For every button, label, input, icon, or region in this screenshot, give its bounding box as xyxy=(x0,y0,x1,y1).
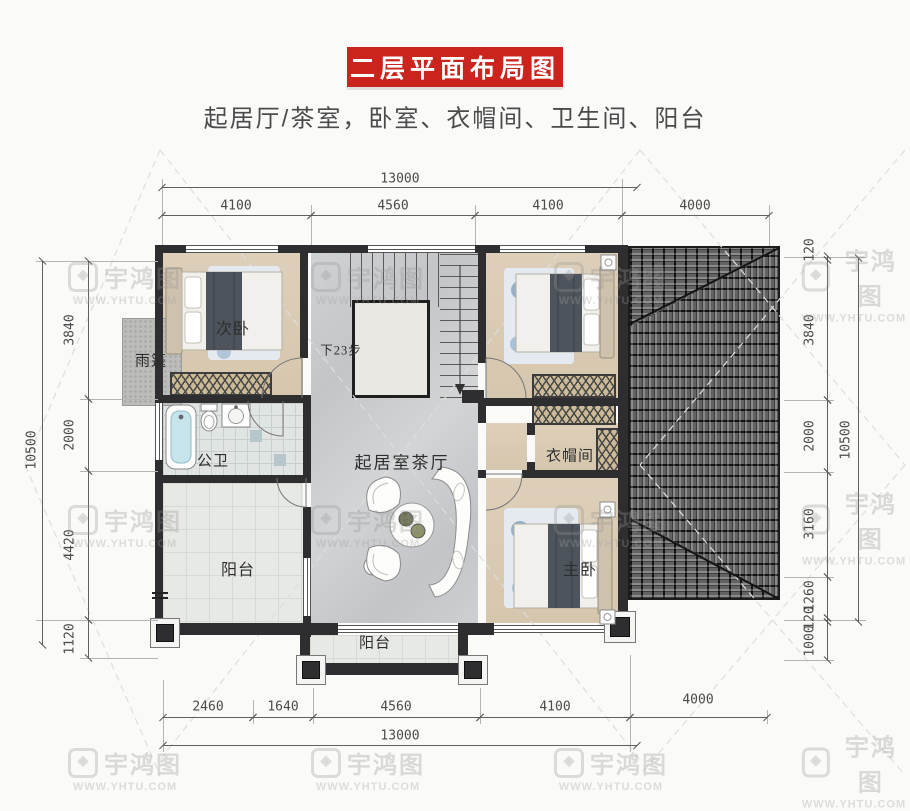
roof-ridge-line xyxy=(628,248,779,599)
nightstand xyxy=(601,255,616,270)
dim-line xyxy=(827,260,828,400)
dim-top-seg: 4560 xyxy=(377,199,408,214)
dim-top-overall: 13000 xyxy=(380,172,419,187)
dim-line xyxy=(480,717,630,718)
dim-bottom-seg: 4000 xyxy=(682,693,713,708)
decor xyxy=(367,546,401,581)
decor xyxy=(600,502,615,517)
dim-right-overall: 10500 xyxy=(839,420,854,459)
dim-line xyxy=(827,577,828,618)
dim-line xyxy=(42,261,43,645)
dim-line xyxy=(475,215,622,216)
dim-left-seg: 1120 xyxy=(63,623,78,654)
dim-bottom-seg: 4100 xyxy=(539,700,570,715)
decor xyxy=(601,255,616,270)
dim-right-seg: 3840 xyxy=(803,314,818,345)
dim-line xyxy=(630,717,767,718)
dim-extension-line xyxy=(769,205,770,246)
decor xyxy=(277,478,306,507)
decor xyxy=(234,405,238,409)
dim-line xyxy=(163,717,253,718)
decor xyxy=(166,268,182,354)
dim-line xyxy=(88,399,89,471)
dim-extension-line xyxy=(36,261,158,262)
dim-left-overall: 10500 xyxy=(25,430,40,469)
dim-extension-line xyxy=(630,655,631,752)
decor xyxy=(411,524,425,538)
dim-line xyxy=(827,622,828,660)
dim-bottom-seg: 4560 xyxy=(380,700,411,715)
dim-left-seg: 3840 xyxy=(63,314,78,345)
dim-line xyxy=(622,215,769,216)
dim-extension-line xyxy=(311,205,312,245)
decor xyxy=(185,277,201,308)
label-balcony-bottom: 阳台 xyxy=(359,632,391,653)
dim-extension-line xyxy=(36,620,158,621)
dim-bottom-overall: 13000 xyxy=(380,729,419,744)
page: { "header": { "title": "二层平面布局图", "subti… xyxy=(0,0,910,792)
sink-vanity xyxy=(222,404,250,427)
dim-left-seg: 4420 xyxy=(63,529,78,560)
curved-sofa xyxy=(429,467,471,597)
dim-extension-line xyxy=(80,658,158,659)
decor xyxy=(390,503,434,547)
label-master-bedroom: 主卧 xyxy=(563,556,597,580)
dim-bottom-seg: 2460 xyxy=(192,700,223,715)
decor xyxy=(179,415,184,420)
dim-extension-line xyxy=(253,700,254,724)
decor xyxy=(399,512,413,526)
dim-right-seg: 2000 xyxy=(803,420,818,451)
decor xyxy=(600,266,614,358)
dim-right-seg: 3160 xyxy=(803,508,818,539)
dim-top-seg: 4100 xyxy=(532,199,563,214)
bathtub xyxy=(166,405,196,469)
dim-line xyxy=(253,717,313,718)
dim-top-seg: 4100 xyxy=(220,199,251,214)
dim-line xyxy=(88,261,89,399)
dim-line xyxy=(88,471,89,620)
decor xyxy=(628,518,779,599)
dim-extension-line xyxy=(475,205,476,245)
decor xyxy=(584,279,599,310)
dim-extension-line xyxy=(313,688,314,724)
label-secondary-bedroom: 次卧 xyxy=(216,315,250,339)
dim-line xyxy=(162,187,637,188)
label-balcony-left: 阳台 xyxy=(221,556,255,580)
decor xyxy=(598,518,612,614)
dim-bottom-seg: 1640 xyxy=(267,700,298,715)
tea-table xyxy=(390,503,434,547)
dim-right-seg: 1000 xyxy=(803,625,818,656)
stair-arrow xyxy=(455,265,465,395)
decor xyxy=(262,358,302,398)
bed-bedroom-2 xyxy=(516,266,614,358)
decor xyxy=(600,610,615,624)
decor xyxy=(550,274,582,352)
dim-line xyxy=(827,472,828,577)
dim-line xyxy=(827,400,828,472)
dim-line xyxy=(313,717,480,718)
label-cloakroom: 衣帽间 xyxy=(546,445,594,466)
dim-line xyxy=(163,745,637,746)
dim-extension-line xyxy=(80,399,158,400)
decor xyxy=(201,404,217,411)
toilet xyxy=(201,404,217,431)
plan-symbols xyxy=(0,0,910,792)
dim-left-seg: 2000 xyxy=(63,419,78,450)
dim-line xyxy=(162,215,311,216)
dim-line xyxy=(88,620,89,658)
decor xyxy=(248,401,283,436)
dim-extension-line xyxy=(480,688,481,724)
brand-url: WWW.YHTU.COM xyxy=(802,799,906,811)
label-bathroom: 公卫 xyxy=(197,450,229,471)
decor xyxy=(229,409,244,424)
dim-right-seg: 120 xyxy=(803,238,818,261)
decor xyxy=(628,248,779,325)
dim-line xyxy=(311,215,475,216)
label-stair-note: 下23步 xyxy=(320,340,362,359)
decor xyxy=(455,384,465,395)
bed-secondary-bedroom xyxy=(166,268,282,354)
decor xyxy=(584,314,599,345)
dim-extension-line xyxy=(80,471,158,472)
decor xyxy=(367,477,401,512)
decor xyxy=(185,312,201,343)
label-canopy: 雨篷 xyxy=(135,350,167,371)
dim-line xyxy=(858,258,859,622)
decor xyxy=(486,474,522,510)
label-living-tea-hall: 起居室茶厅 xyxy=(355,449,450,474)
dim-top-seg: 4000 xyxy=(679,199,710,214)
